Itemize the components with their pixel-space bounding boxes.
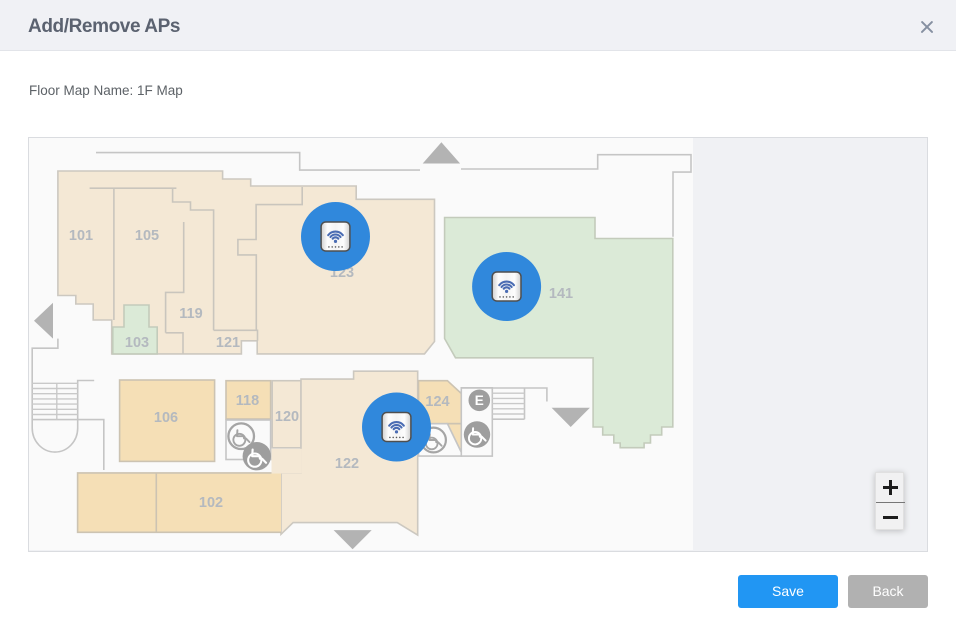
svg-text:105: 105 (135, 228, 159, 244)
svg-text:E: E (475, 393, 484, 408)
svg-text:102: 102 (199, 495, 223, 511)
svg-text:101: 101 (69, 228, 93, 244)
svg-text:121: 121 (216, 335, 240, 351)
svg-text:124: 124 (425, 394, 449, 410)
svg-text:103: 103 (125, 335, 149, 351)
svg-text:118: 118 (236, 393, 259, 409)
svg-text:122: 122 (335, 456, 359, 472)
svg-text:106: 106 (154, 410, 178, 426)
svg-text:120: 120 (275, 409, 299, 425)
svg-text:141: 141 (549, 286, 573, 302)
svg-text:119: 119 (179, 306, 202, 322)
